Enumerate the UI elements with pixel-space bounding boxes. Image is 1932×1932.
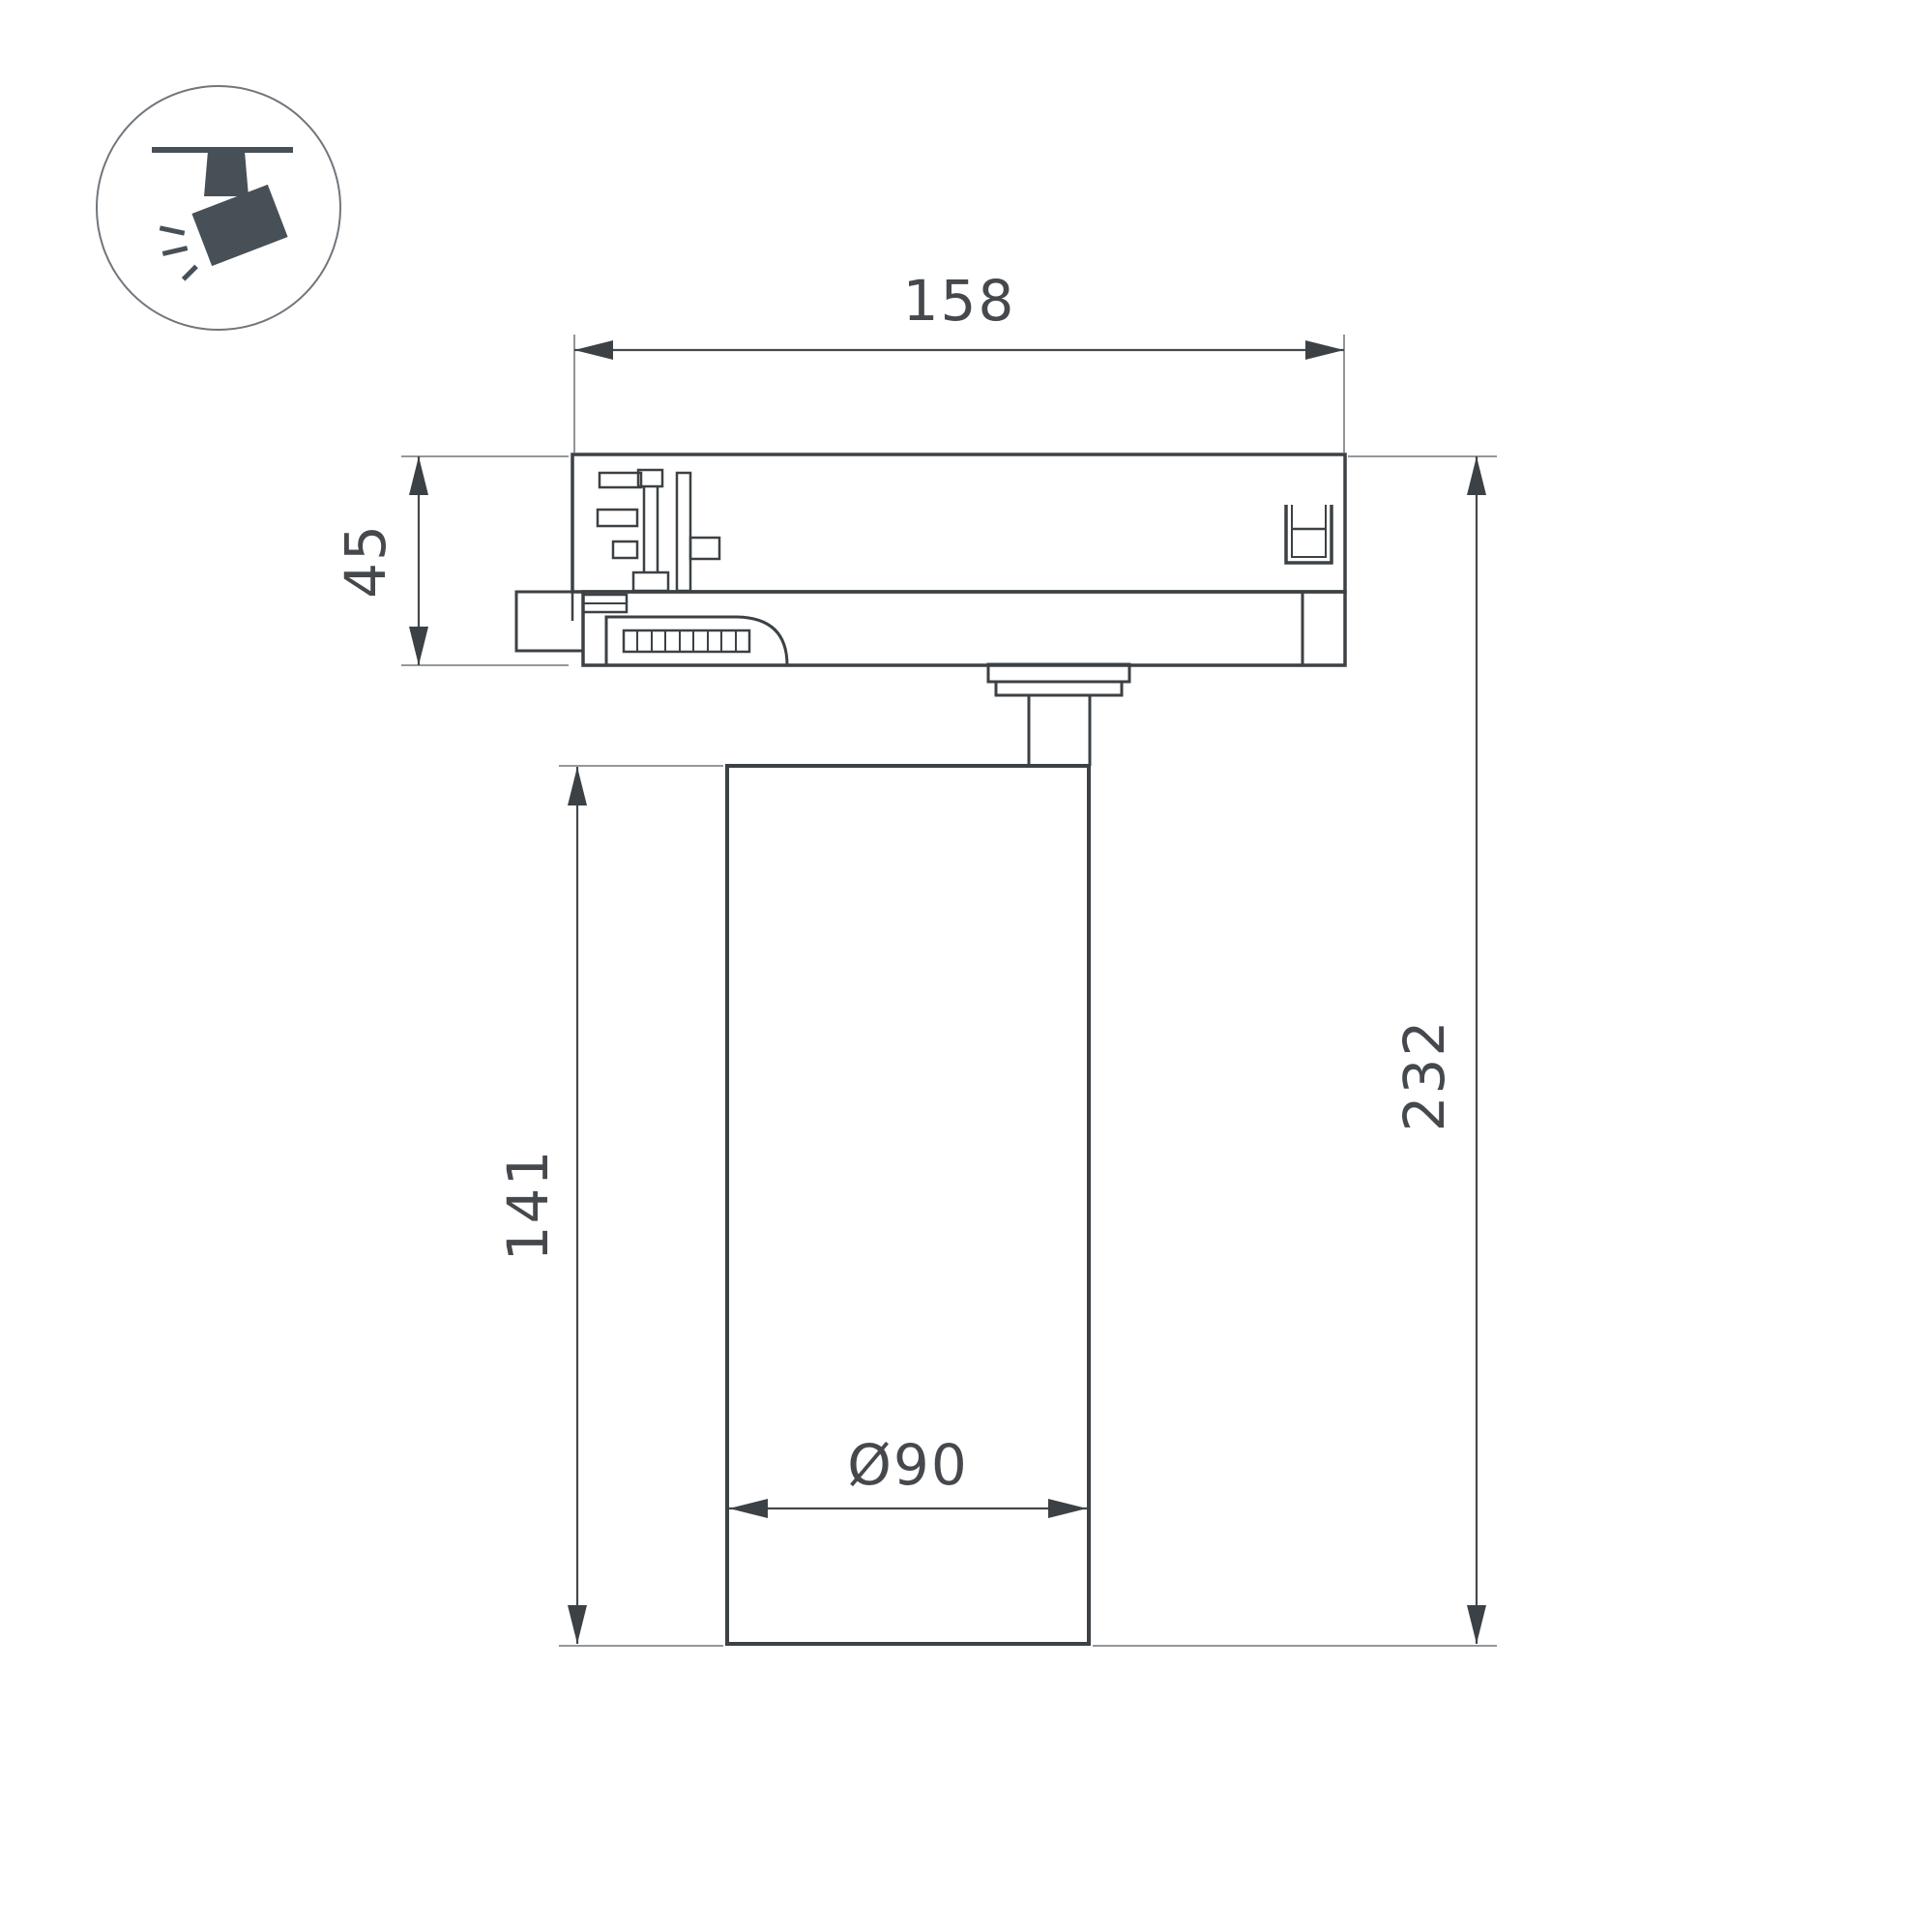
connector-plate-notch [690, 538, 719, 559]
adapter-upper-body [572, 454, 1345, 592]
arrow-d90-right [1048, 1499, 1087, 1518]
arrow-232-top [1467, 456, 1486, 495]
contact-clip-outer [1286, 505, 1332, 563]
dimension-label-adapter-length: 158 [853, 273, 1066, 329]
lamp-body-cylinder [727, 766, 1089, 1644]
connector-prong-top [600, 473, 641, 487]
arrow-d90-left [729, 1499, 768, 1518]
connector-plate [677, 473, 690, 591]
arrow-45-top [409, 456, 428, 495]
adapter-grip-housing [606, 617, 787, 665]
connector-assembly [598, 470, 719, 591]
connector-prong-bottom [613, 542, 637, 558]
dimension-label-adapter-height: 45 [337, 523, 394, 599]
dimension-label-body-diameter: Ø90 [802, 1437, 1014, 1493]
arrow-45-bottom [409, 627, 428, 665]
connector-foot [633, 572, 668, 591]
contact-clip-inner [1292, 505, 1326, 557]
grip-ribs [637, 630, 736, 652]
mount-step-lower [996, 682, 1122, 695]
grip-ribs-frame [624, 630, 749, 652]
drawing-canvas: 158 45 141 232 Ø90 [0, 0, 1932, 1932]
arrow-158-left [574, 340, 613, 360]
arrow-141-top [568, 767, 587, 805]
connector-prong-middle [598, 510, 637, 526]
arrow-232-bottom [1467, 1605, 1486, 1644]
arrow-158-right [1305, 340, 1344, 360]
dimension-label-total-height: 232 [1396, 1019, 1452, 1132]
arrow-141-bottom [568, 1605, 587, 1644]
adapter-lower-body [583, 592, 1345, 665]
dimension-label-body-height: 141 [500, 1149, 556, 1262]
